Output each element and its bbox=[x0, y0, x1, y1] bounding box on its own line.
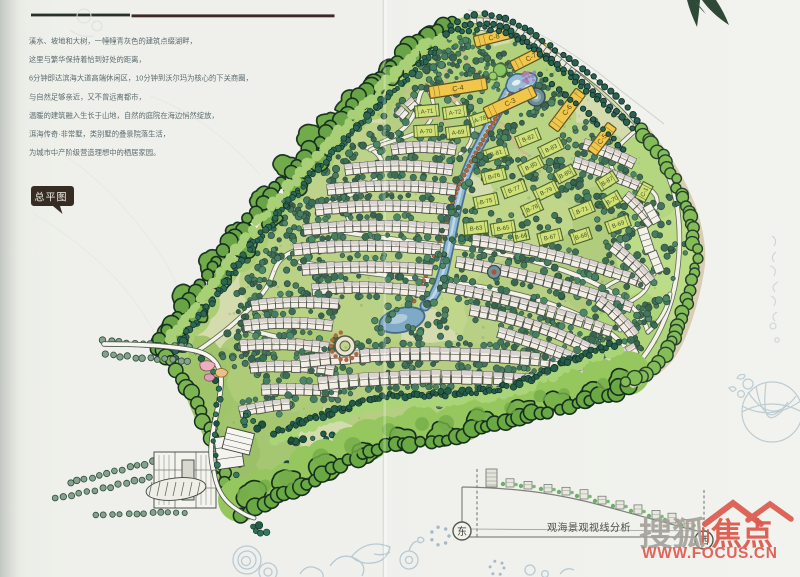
svg-text:东: 东 bbox=[457, 525, 467, 538]
svg-text:总平图: 总平图 bbox=[35, 191, 68, 204]
svg-text:与自然足够亲近，又不曾远离都市，: 与自然足够亲近，又不曾远离都市， bbox=[29, 92, 146, 101]
svg-text:为城市中产阶级营造理想中的栖居家园。: 为城市中产阶级营造理想中的栖居家园。 bbox=[29, 148, 160, 157]
svg-text:这里与繁华保持着恰到好处的距离，: 这里与繁华保持着恰到好处的距离， bbox=[29, 55, 146, 64]
svg-text:6分钟即达滨海大道高端休闲区，10分钟到沃尔玛为核心的下关商: 6分钟即达滨海大道高端休闲区，10分钟到沃尔玛为核心的下关商圈， bbox=[29, 74, 253, 83]
svg-text:洱海传奇·非常墅，类别墅的叠景院落生活，: 洱海传奇·非常墅，类别墅的叠景院落生活， bbox=[29, 130, 170, 139]
svg-text:WWW.FOCUS.CN: WWW.FOCUS.CN bbox=[642, 545, 777, 562]
svg-text:溪水、坡地和大树，一幢幢青灰色的建筑点缀湖畔，: 溪水、坡地和大树，一幢幢青灰色的建筑点缀湖畔， bbox=[29, 37, 197, 46]
svg-text:观海景观视线分析: 观海景观视线分析 bbox=[547, 521, 631, 534]
